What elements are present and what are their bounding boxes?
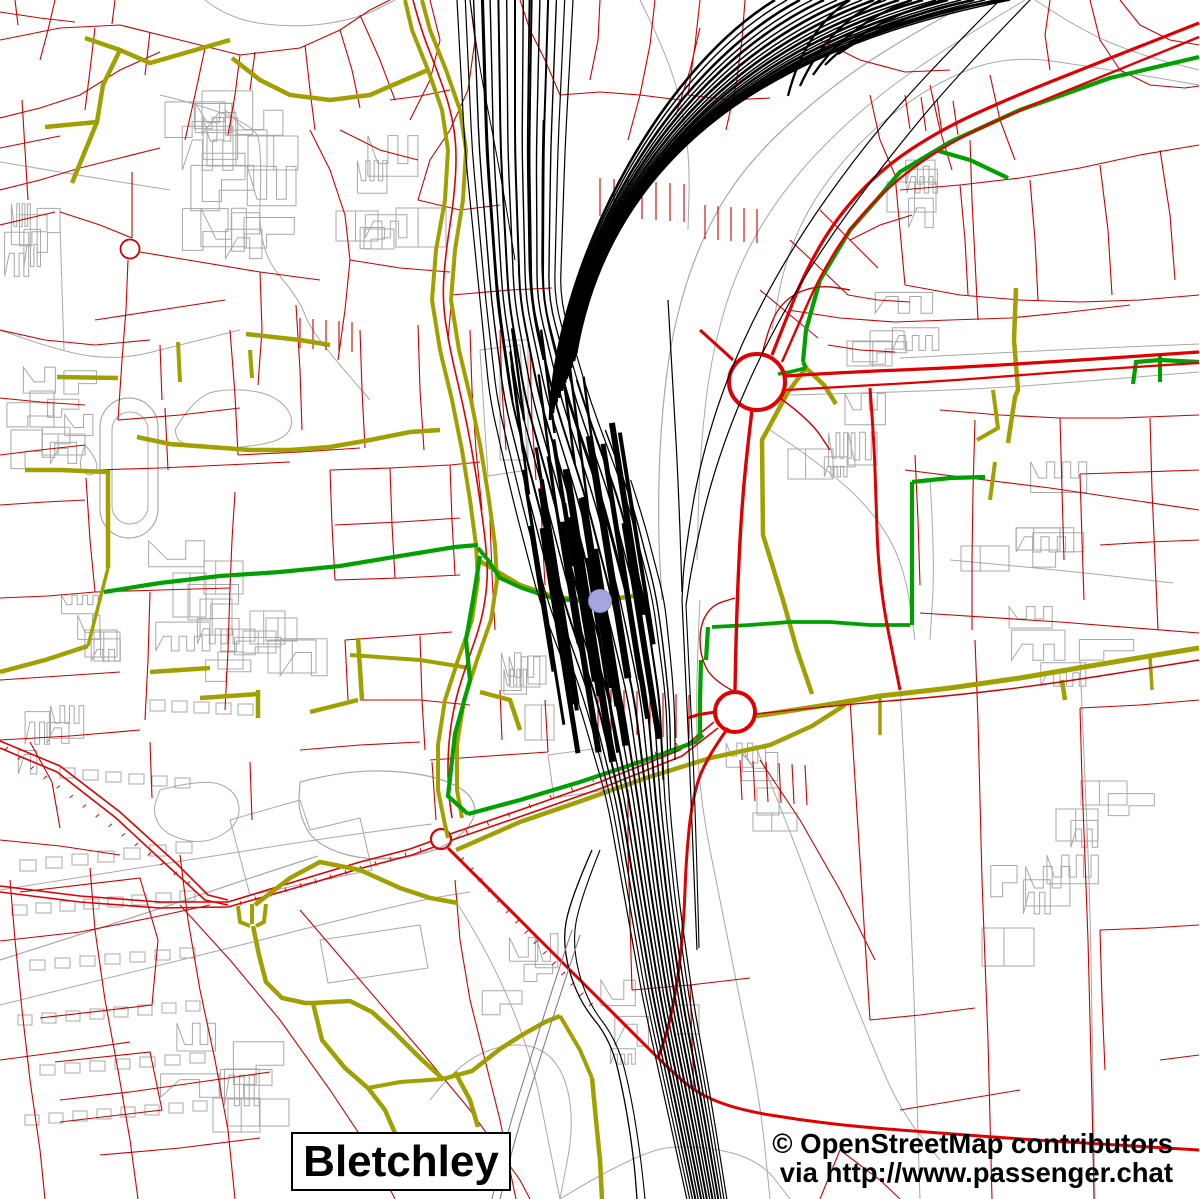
svg-text:Bletchley: Bletchley: [303, 1137, 499, 1186]
svg-text:via http://www.passenger.chat: via http://www.passenger.chat: [780, 1157, 1173, 1188]
svg-text:© OpenStreetMap contributors: © OpenStreetMap contributors: [772, 1128, 1173, 1159]
